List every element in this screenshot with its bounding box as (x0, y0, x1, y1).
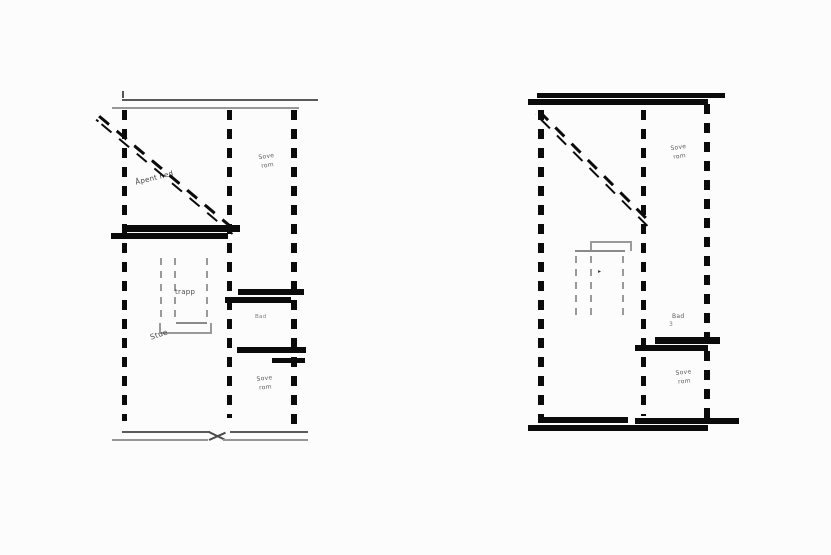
stairs-direction-arrow-icon: ▸ (598, 269, 601, 276)
exterior-wall-top-2 (528, 99, 708, 105)
bedroom-top-label: Sove rom (250, 150, 284, 172)
bedroom-label-line2: rom (249, 381, 282, 393)
bathroom-note: 3 (669, 322, 673, 329)
left-floor-plan: Åpent ned Sove rom trapp Stue Bad Sove r… (105, 88, 320, 453)
bath-wall-top-b (225, 297, 291, 303)
exterior-wall-bottom-line1 (122, 431, 210, 433)
dashed-wall-middle (641, 110, 646, 416)
roof-slope-stripe (535, 113, 648, 226)
bath-wall-bottom-stub (272, 358, 305, 363)
bath-wall-bottom (237, 347, 306, 353)
exterior-wall-top-1 (537, 93, 725, 98)
stairs-label: trapp (175, 288, 195, 296)
living-room-label: Stue (149, 328, 169, 342)
interior-wall-segment (122, 225, 240, 232)
exterior-wall-bottom-line1 (230, 431, 308, 433)
stairs-step-line (206, 258, 208, 322)
top-wall-tick (122, 91, 124, 98)
bedroom-bottom-label: Sove rom (667, 366, 701, 387)
document-canvas: Åpent ned Sove rom trapp Stue Bad Sove r… (0, 0, 831, 555)
dashed-wall-left (538, 110, 544, 421)
bath-wall-top-a (238, 289, 304, 295)
dashed-wall-middle (227, 110, 232, 418)
exterior-wall-bottom-line2 (112, 439, 208, 441)
bedroom-label-line2: rom (668, 375, 701, 387)
interior-wall-segment (111, 233, 228, 239)
stairs-step-line (622, 256, 624, 318)
right-floor-plan: ▸ Sove rom Bad 3 Sove rom (520, 85, 740, 450)
exterior-wall-top-line2 (112, 107, 299, 109)
stairs-step-line (160, 258, 162, 322)
exterior-wall-top-line1 (122, 99, 318, 101)
stairs-step-line (590, 256, 592, 318)
dashed-wall-left (122, 110, 127, 421)
dashed-wall-right (291, 110, 297, 426)
roof-slope-stripe (538, 110, 651, 223)
bathroom-label: Bad (672, 314, 685, 321)
exterior-wall-bottom-1 (538, 417, 628, 423)
exterior-wall-bottom-1 (635, 418, 739, 424)
bathroom-label: Bad (255, 314, 267, 320)
bath-wall-a (655, 337, 720, 344)
stairs-tread-line (575, 250, 625, 252)
stairs-step-line (575, 256, 577, 318)
bedroom-top-label: Sove rom (662, 141, 696, 163)
dashed-wall-right (704, 104, 710, 421)
bedroom-bottom-label: Sove rom (248, 372, 282, 393)
roof-slope-dashed-line (534, 110, 652, 228)
bath-wall-b (635, 345, 708, 351)
exterior-wall-bottom-2 (528, 425, 708, 431)
exterior-wall-bottom-line2 (223, 439, 308, 441)
